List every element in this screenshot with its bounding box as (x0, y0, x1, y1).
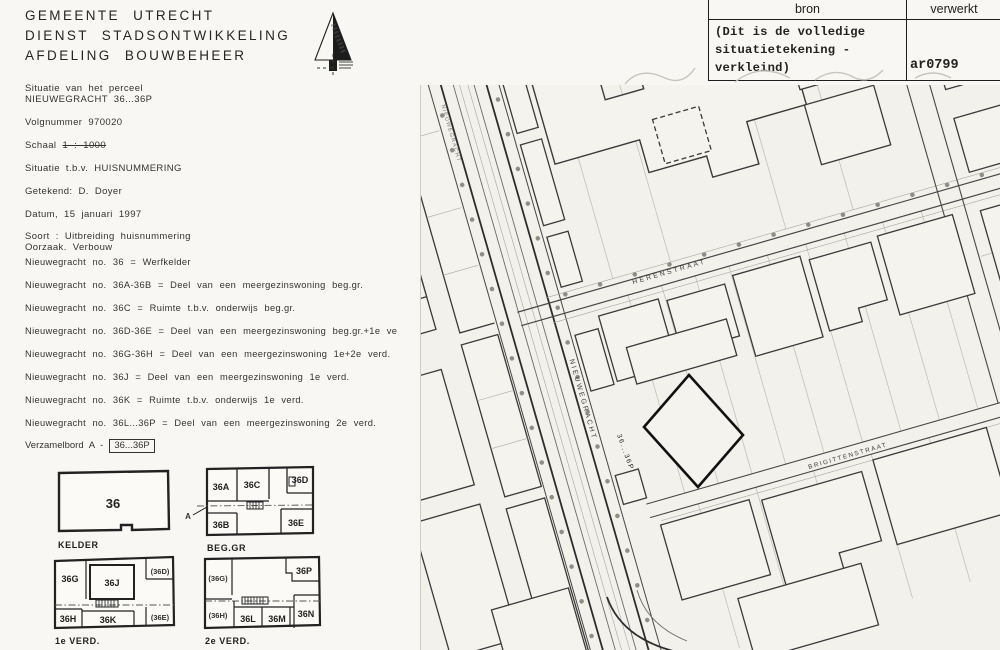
verzamelbord-value: 36...36P (109, 439, 154, 453)
room-36n: 36N (298, 609, 315, 619)
entry-36: Nieuwegracht no. 36 = Werfkelder (25, 257, 191, 267)
org-line-3: AFDELING BOUWBEHEER (25, 46, 290, 66)
stamp-col-verwerkt: verwerkt (907, 2, 1000, 16)
organisation-header: GEMEENTE UTRECHT DIENST STADSONTWIKKELIN… (25, 6, 290, 66)
room-36p: 36P (296, 566, 312, 576)
north-arrow-icon (303, 10, 361, 80)
floorplan-beggr: A 36A 36C 36D 36B 36E BEG.GR (183, 463, 318, 557)
entry-36k: Nieuwegracht no. 36K = Ruimte t.b.v. ond… (25, 395, 304, 405)
entry-36a-b: Nieuwegracht no. 36A-36B = Deel van een … (25, 280, 363, 290)
org-line-1: GEMEENTE UTRECHT (25, 6, 290, 26)
room-36e-ghost: (36E) (151, 613, 170, 622)
scanned-situation-document: GEMEENTE UTRECHT DIENST STADSONTWIKKELIN… (0, 0, 1000, 650)
marker-a: A (185, 512, 191, 521)
entry-36l-p: Nieuwegracht no. 36L...36P = Deel van ee… (25, 418, 376, 428)
plan-caption-2everd: 2e VERD. (205, 636, 250, 646)
room-36b: 36B (213, 520, 230, 530)
room-36j: 36J (104, 578, 119, 588)
schaal-line: Schaal 1 : 1000 (25, 140, 106, 151)
plan-caption-kelder: KELDER (58, 540, 99, 550)
subject-value: NIEUWEGRACHT 36...36P (25, 94, 152, 105)
room-36: 36 (106, 496, 120, 511)
room-36k: 36K (100, 615, 117, 625)
map-street-grid: HERENSTRAAT BRIGITTENSTRAAT NIEUWEGRACHT… (421, 85, 1000, 650)
schaal-label: Schaal (25, 140, 56, 151)
situation-map-drawing: HERENSTRAAT BRIGITTENSTRAAT NIEUWEGRACHT… (421, 85, 1000, 650)
floorplan-kelder: 36 KELDER (55, 466, 173, 556)
room-36a: 36A (213, 482, 230, 492)
room-36d: 36D (292, 475, 309, 485)
entry-36c: Nieuwegracht no. 36C = Ruimte t.b.v. ond… (25, 303, 295, 313)
entry-36g-h: Nieuwegracht no. 36G-36H = Deel van een … (25, 349, 390, 359)
stamp-note-line-1: (Dit is de volledige (715, 23, 865, 41)
verzamelbord-label: Verzamelbord A - (25, 440, 103, 451)
room-36l: 36L (240, 614, 256, 624)
stamp-col-bron: bron (709, 2, 906, 16)
org-line-2: DIENST STADSONTWIKKELING (25, 26, 290, 46)
plan-caption-beggr: BEG.GR (207, 543, 246, 553)
datum: Datum, 15 januari 1997 (25, 209, 142, 220)
plan-caption-1everd: 1e VERD. (55, 636, 100, 646)
situation-map: HERENSTRAAT BRIGITTENSTRAAT NIEUWEGRACHT… (420, 85, 1000, 650)
room-36m: 36M (268, 614, 286, 624)
floorplan-1everd: 36G 36J (36D) 36H 36K (36E) 1e VERD. (50, 553, 182, 648)
soort: Soort : Uitbreiding huisnummering (25, 231, 191, 242)
oorzaak: Oorzaak. Verbouw (25, 242, 113, 253)
stamp-header-rule (709, 19, 1000, 20)
room-36h-ghost: (36H) (209, 611, 228, 620)
room-36h: 36H (60, 614, 77, 624)
entry-36j: Nieuwegracht no. 36J = Deel van een meer… (25, 372, 349, 382)
parcel-label: 36...36P (615, 433, 635, 471)
room-36g: 36G (61, 574, 78, 584)
verzamelbord-line: Verzamelbord A -36...36P (25, 439, 155, 453)
schaal-value: 1 : 1000 (63, 140, 107, 151)
room-36c: 36C (244, 480, 261, 490)
floorplan-2everd: (36G) 36P (36H) 36L 36M 36N 2e VERD. (200, 553, 328, 648)
room-36g-ghost: (36G) (208, 574, 228, 583)
getekend: Getekend: D. Doyer (25, 186, 122, 197)
entry-36d-e: Nieuwegracht no. 36D-36E = Deel van een … (25, 326, 397, 336)
situatie-tbv: Situatie t.b.v. HUISNUMMERING (25, 163, 182, 174)
room-36e: 36E (288, 518, 304, 528)
room-36d-ghost: (36D) (151, 567, 170, 576)
volgnummer: Volgnummer 970020 (25, 117, 122, 128)
subject-label: Situatie van het perceel (25, 83, 143, 94)
